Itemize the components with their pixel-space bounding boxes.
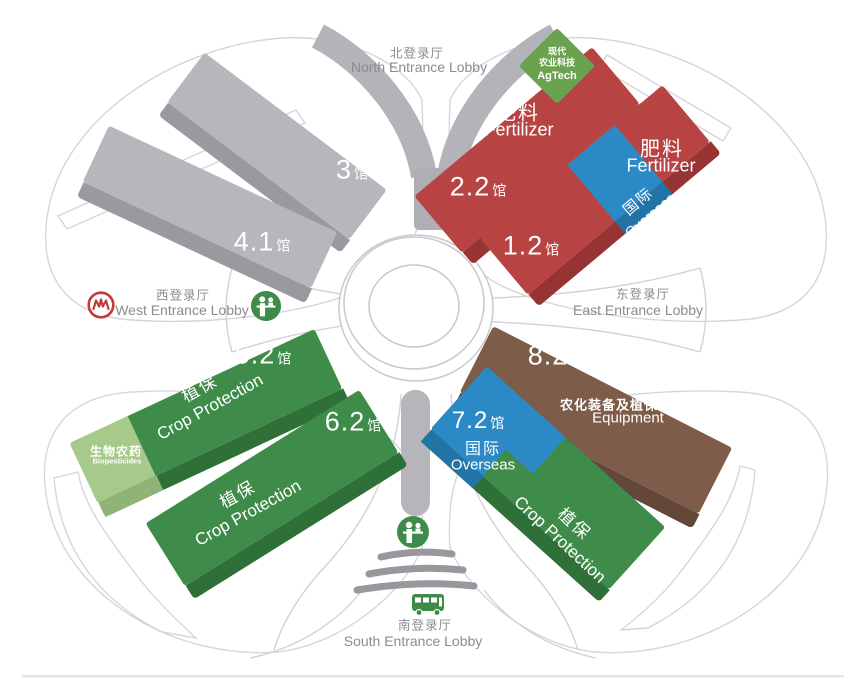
- hall-6.2-label: 6.2馆: [325, 407, 382, 438]
- south-funnel-stem: [401, 390, 430, 516]
- east-entrance-label-en: East Entrance Lobby: [573, 302, 703, 318]
- metro-icon: [86, 290, 116, 325]
- biopesticides-label-en: Biopesticides: [93, 457, 142, 466]
- hall-8.2-category-en: Equipment: [592, 410, 664, 427]
- hall-1.2-label: 1.2馆: [503, 231, 560, 262]
- agtech-label-line3: AgTech: [537, 70, 577, 82]
- registration-icon: [250, 290, 282, 327]
- clover-outline-layer: [0, 0, 844, 682]
- north-entrance-label-en: North Entrance Lobby: [351, 59, 487, 75]
- hall-7.2-overseas-cn: 国际: [465, 435, 501, 459]
- south-entrance-label-cn: 南登录厅: [398, 615, 452, 634]
- hall-8.2-label: 8.2馆: [528, 341, 585, 372]
- south-entrance-label-en: South Entrance Lobby: [344, 633, 483, 649]
- hall-2.2-category-en: Fertilizer: [484, 120, 553, 141]
- west-entrance-label-cn: 西登录厅: [156, 285, 210, 304]
- hall-4.1-label: 4.1馆: [234, 227, 291, 258]
- hall-1.2-category-en: Fertilizer: [626, 156, 695, 177]
- hall-7.2-label: 7.2馆: [452, 407, 504, 435]
- registration-icon: [396, 515, 430, 554]
- bottom-accent-line: [22, 675, 844, 678]
- west-entrance-label-en: West Entrance Lobby: [115, 302, 249, 318]
- agtech-label-line2: 农业科技: [539, 56, 575, 69]
- hall-7.2-overseas-en: Overseas: [451, 457, 515, 474]
- hall-2.2-label: 2.2馆: [450, 172, 507, 203]
- hall-3-label: 3馆: [336, 155, 368, 186]
- exhibition-floor-map: 北登录厅 North Entrance Lobby 西登录厅 West Entr…: [0, 0, 844, 682]
- east-entrance-label-cn: 东登录厅: [616, 284, 670, 303]
